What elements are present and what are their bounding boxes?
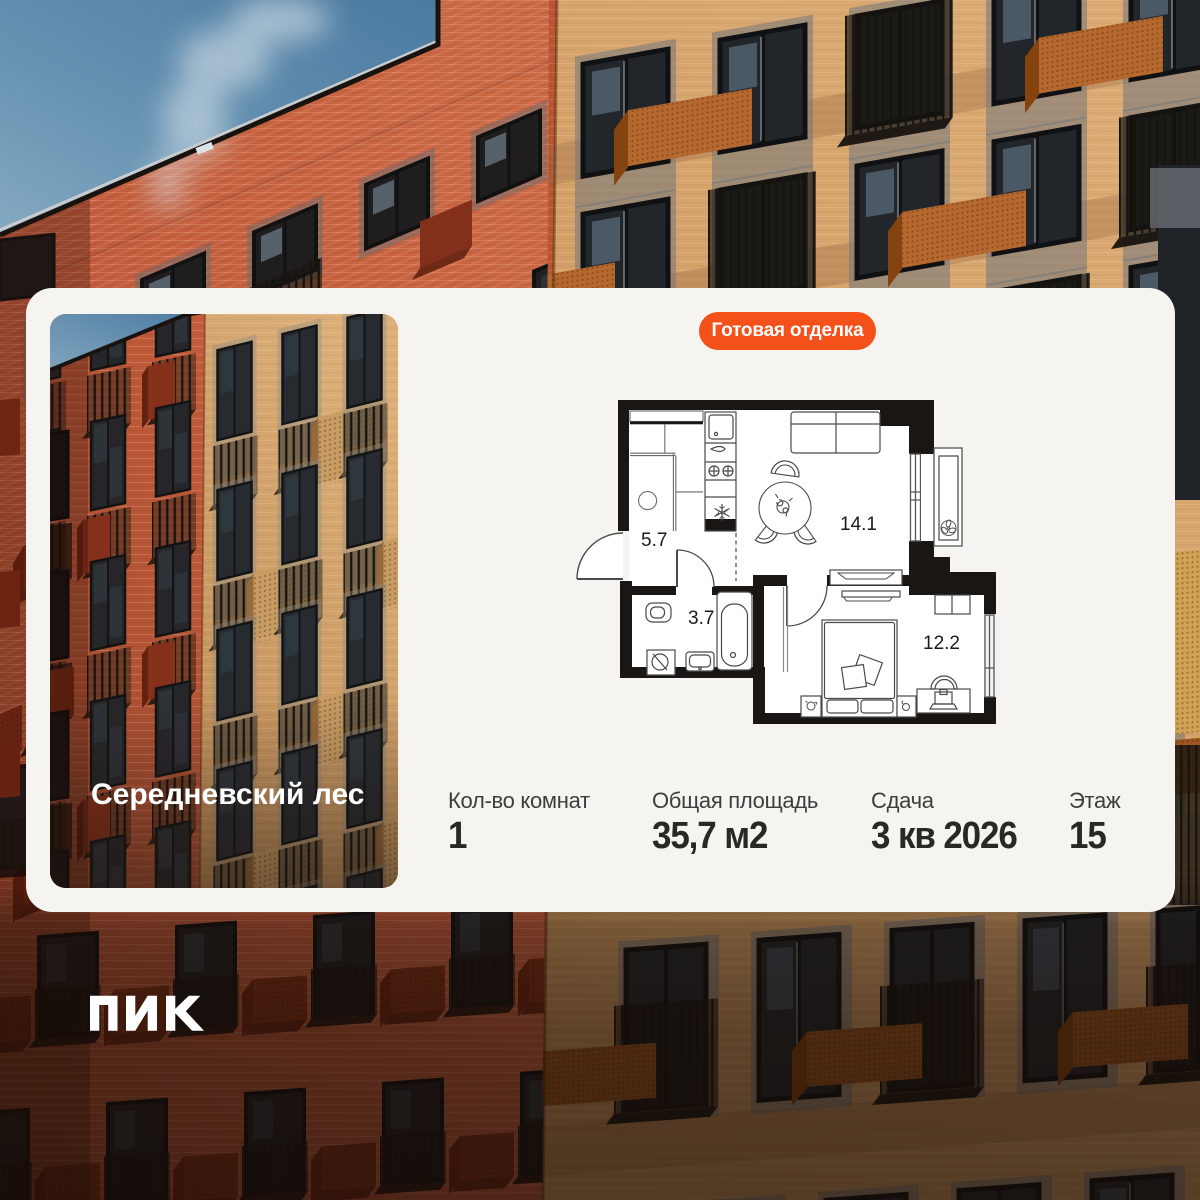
svg-text:5.7: 5.7: [641, 530, 667, 551]
svg-text:3.7: 3.7: [688, 608, 714, 629]
svg-text:12.2: 12.2: [923, 633, 960, 654]
svg-text:14.1: 14.1: [840, 514, 877, 535]
svg-text:Середневский лес: Середневский лес: [91, 778, 364, 811]
